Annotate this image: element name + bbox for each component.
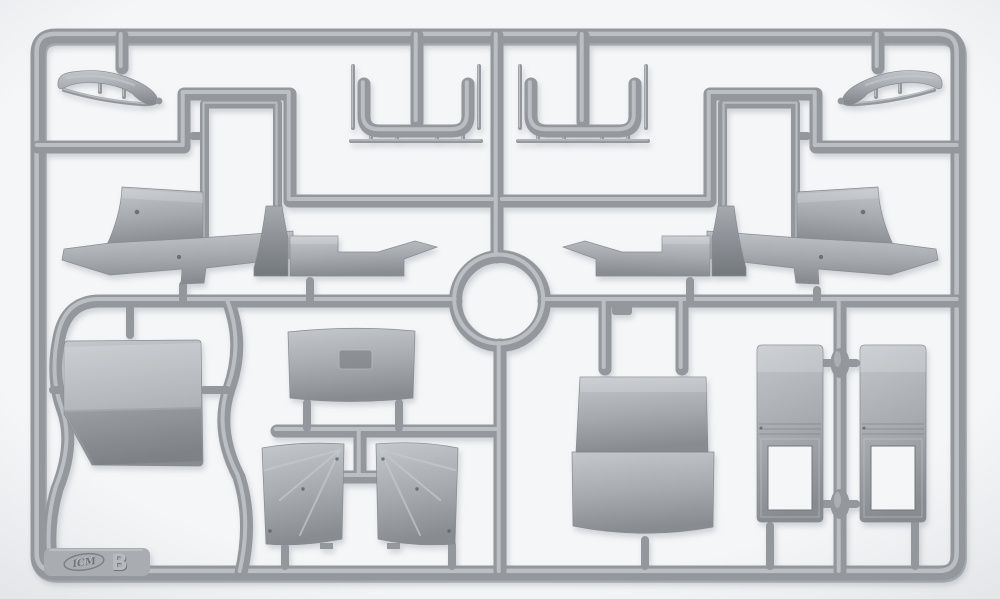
part-door-right — [376, 443, 458, 549]
door-tab — [320, 543, 333, 549]
part-door-left — [262, 443, 344, 549]
photo-canvas: ICM ICM B B — [0, 0, 1000, 599]
plate-shape — [44, 548, 150, 576]
part-cab-rear-panel — [288, 328, 415, 401]
door-hole — [447, 529, 450, 532]
bed-panel-facet — [580, 377, 707, 392]
part-window-door-left — [757, 345, 823, 522]
bed-panel-bottom-tier — [572, 452, 714, 533]
roof-panel-facet — [64, 343, 201, 410]
part-window-door-right — [860, 345, 926, 522]
maker-plate: ICM ICM B B — [44, 548, 150, 577]
runner-bulge-highlight — [834, 492, 841, 508]
window-door-shape — [757, 345, 823, 522]
sprue-photo: ICM ICM B B — [0, 0, 1000, 599]
door-tab — [387, 543, 400, 549]
window-door-shape — [860, 345, 926, 522]
door-hole — [301, 487, 304, 490]
runner-tab — [612, 304, 632, 315]
runner-bulge-highlight — [834, 351, 841, 367]
rear-window-recess — [339, 350, 372, 369]
door-hole — [335, 457, 338, 460]
sprue-letter: B — [111, 551, 128, 576]
door-hole — [415, 487, 418, 490]
part-bed-front-panel — [572, 377, 714, 533]
door-hole — [268, 529, 271, 532]
part-roof-panel — [64, 340, 203, 466]
door-hole — [381, 457, 384, 460]
